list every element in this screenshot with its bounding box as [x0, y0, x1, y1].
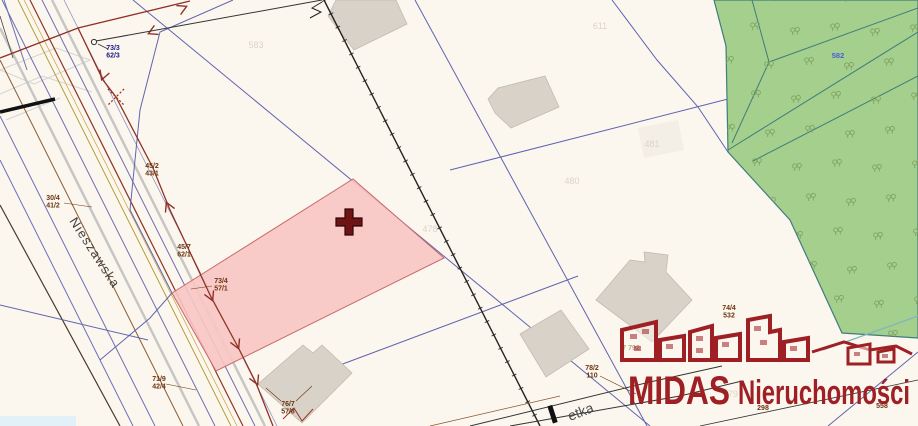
survey-label: 74/4532	[722, 305, 736, 320]
tree-icon	[671, 21, 680, 29]
parcel-number: 583	[248, 40, 263, 50]
tree-icon	[645, 55, 654, 63]
survey-label: 73/457/1	[214, 278, 228, 293]
tree-icon	[685, 60, 694, 68]
tree-icon	[687, 196, 696, 204]
bold-road-edge	[0, 99, 55, 112]
tree-icon	[713, 162, 722, 170]
highlight-parcel	[172, 179, 444, 371]
tree-icon	[647, 191, 656, 199]
survey-label: 30/441/2	[46, 195, 60, 210]
building	[258, 345, 352, 423]
tree-icon	[676, 361, 685, 369]
survey-label: 45/243/1	[145, 163, 159, 178]
logo-brand-text: MIDAS	[628, 369, 730, 413]
parcel-number: 484	[498, 88, 513, 98]
survey-label: 73/362/3	[106, 45, 120, 60]
survey-label: 78/2110	[585, 365, 599, 380]
building	[328, 0, 407, 50]
parcel-number: 481	[644, 139, 659, 149]
parcel-number: 478	[422, 224, 437, 234]
tree-icon	[836, 363, 845, 371]
cadastral-map: 583 611 484 478 480 481 79 73/362/3 30/4…	[0, 0, 918, 426]
tree-icon	[673, 157, 682, 165]
street-name-partial: etka	[565, 399, 596, 423]
survey-label: 45/762/1	[177, 244, 191, 259]
survey-label: 71/942/4	[152, 376, 166, 391]
tree-icon	[727, 192, 736, 200]
corner-watermark-area	[0, 416, 76, 426]
tree-icon	[674, 225, 683, 233]
street-road-lines	[0, 0, 277, 426]
forest-parcel-label: 582	[832, 51, 845, 60]
parcel-number: 480	[564, 176, 579, 186]
logo-suffix-text: Nieruchomości	[738, 374, 910, 412]
map-canvas: 583 611 484 478 480 481 79 73/362/3 30/4…	[0, 0, 918, 426]
parcel-number: 611	[593, 21, 607, 31]
tree-icon	[756, 362, 765, 370]
gate-tick	[547, 405, 557, 424]
tree-icon	[754, 226, 763, 234]
tree-icon	[728, 260, 737, 268]
tree-icon	[768, 265, 777, 273]
survey-sight-line	[91, 0, 322, 49]
tree-icon	[755, 294, 764, 302]
tree-icon	[686, 128, 695, 136]
tree-icon	[795, 299, 804, 307]
survey-point-icon	[91, 39, 96, 44]
survey-label: 76/757/8	[281, 401, 295, 416]
tree-icon	[672, 89, 681, 97]
tree-icon	[714, 230, 723, 238]
building	[488, 76, 559, 128]
tree-icon	[711, 26, 720, 34]
tree-icon	[688, 264, 697, 272]
